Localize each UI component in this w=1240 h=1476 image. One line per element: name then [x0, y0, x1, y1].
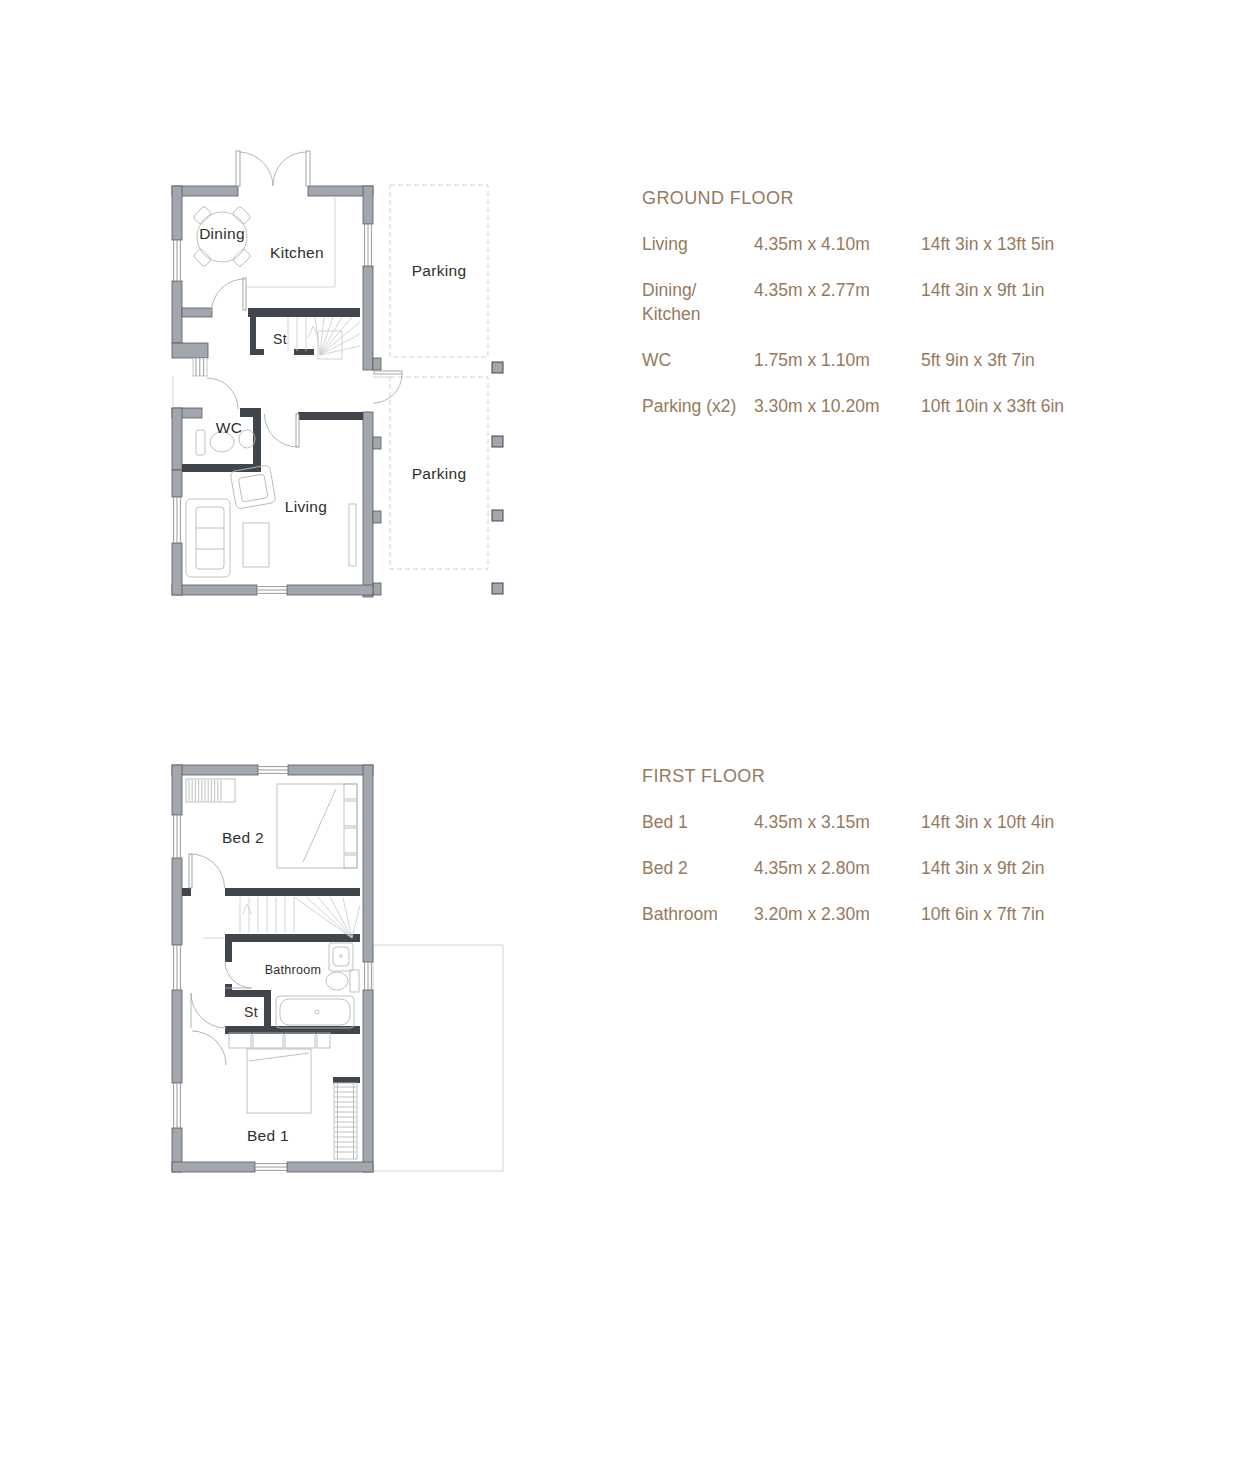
- bed-1: [229, 1033, 330, 1113]
- table-row: Bed 1 4.35m x 3.15m 14ft 3in x 10ft 4in: [642, 810, 1112, 834]
- room-size-imperial: 5ft 9in x 3ft 7in: [921, 348, 1112, 372]
- room-name: Living: [642, 232, 754, 256]
- sofa: [186, 499, 230, 577]
- store-label: St: [273, 331, 287, 347]
- store-label: St: [244, 1004, 258, 1020]
- kitchen-counter: [247, 196, 335, 287]
- dining-label: Dining: [199, 225, 245, 242]
- first-floor-plan: Bed 2 Bathroom St Bed 1: [140, 748, 520, 1190]
- room-size-metric: 4.35m x 2.77m: [754, 278, 921, 326]
- parking-top-label: Parking: [412, 262, 467, 279]
- parking-bottom-label: Parking: [412, 465, 467, 482]
- parking-post: [492, 362, 503, 373]
- ground-floor-table: GROUND FLOOR Living 4.35m x 4.10m 14ft 3…: [642, 186, 1112, 440]
- radiator: [334, 1083, 357, 1159]
- table-row: Bathroom 3.20m x 2.30m 10ft 6in x 7ft 7i…: [642, 902, 1112, 926]
- bathroom-fixtures: [276, 943, 359, 1028]
- table-row: Parking (x2) 3.30m x 10.20m 10ft 10in x …: [642, 394, 1112, 418]
- room-size-metric: 4.35m x 4.10m: [754, 232, 921, 256]
- room-size-metric: 3.30m x 10.20m: [754, 394, 921, 418]
- tv-unit: [349, 504, 356, 566]
- parking-post: [492, 510, 503, 521]
- bed1-label: Bed 1: [247, 1127, 289, 1144]
- floorplan-sheet: Dining Kitchen St WC Living Parking Park…: [0, 0, 1240, 1476]
- first-stairs: [240, 897, 360, 938]
- table-row: Dining/ Kitchen 4.35m x 2.77m 14ft 3in x…: [642, 278, 1112, 326]
- table-row: Living 4.35m x 4.10m 14ft 3in x 13ft 5in: [642, 232, 1112, 256]
- parking-post: [492, 583, 503, 594]
- room-size-imperial: 14ft 3in x 9ft 2in: [921, 856, 1112, 880]
- room-name: Dining/ Kitchen: [642, 278, 754, 326]
- living-label: Living: [285, 498, 327, 515]
- room-size-metric: 4.35m x 2.80m: [754, 856, 921, 880]
- ground-floor-plan: Dining Kitchen St WC Living Parking Park…: [140, 130, 520, 610]
- room-name: WC: [642, 348, 754, 372]
- french-doors: [236, 151, 310, 186]
- wardrobe: [186, 779, 235, 802]
- room-size-metric: 4.35m x 3.15m: [754, 810, 921, 834]
- room-name: Bed 2: [642, 856, 754, 880]
- kitchen-label: Kitchen: [270, 244, 324, 261]
- roof-outline: [373, 945, 503, 1171]
- windows: [173, 224, 371, 593]
- bathroom-label: Bathroom: [265, 963, 322, 977]
- room-size-imperial: 10ft 10in x 33ft 6in: [921, 394, 1112, 418]
- room-name: Bathroom: [642, 902, 754, 926]
- ground-floor-title: GROUND FLOOR: [642, 186, 1112, 210]
- room-size-imperial: 14ft 3in x 10ft 4in: [921, 810, 1112, 834]
- parking-post: [492, 436, 503, 447]
- table-row: Bed 2 4.35m x 2.80m 14ft 3in x 9ft 2in: [642, 856, 1112, 880]
- first-floor-title: FIRST FLOOR: [642, 764, 1112, 788]
- room-name: Bed 1: [642, 810, 754, 834]
- bed2-label: Bed 2: [222, 829, 264, 846]
- room-size-imperial: 14ft 3in x 13ft 5in: [921, 232, 1112, 256]
- room-size-imperial: 14ft 3in x 9ft 1in: [921, 278, 1112, 326]
- first-floor-table: FIRST FLOOR Bed 1 4.35m x 3.15m 14ft 3in…: [642, 764, 1112, 948]
- bed-2: [277, 784, 357, 868]
- room-size-imperial: 10ft 6in x 7ft 7in: [921, 902, 1112, 926]
- room-size-metric: 1.75m x 1.10m: [754, 348, 921, 372]
- coffee-table: [243, 523, 269, 567]
- first-interior-walls: [182, 888, 360, 1083]
- table-row: WC 1.75m x 1.10m 5ft 9in x 3ft 7in: [642, 348, 1112, 372]
- wc-label: WC: [216, 419, 242, 436]
- room-size-metric: 3.20m x 2.30m: [754, 902, 921, 926]
- room-name: Parking (x2): [642, 394, 754, 418]
- parking-bays: [373, 185, 503, 594]
